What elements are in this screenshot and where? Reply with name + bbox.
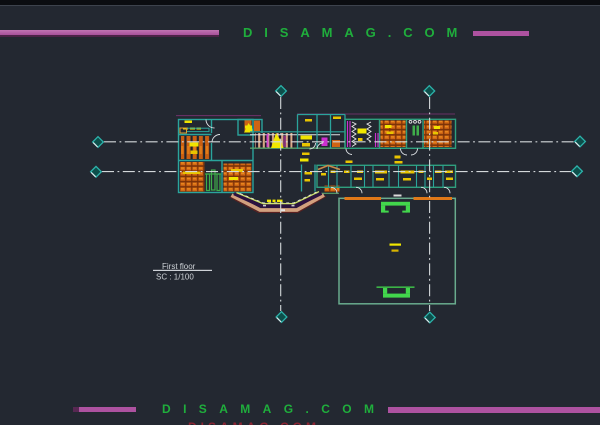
svg-text:SC : 1/100: SC : 1/100 [156,273,194,282]
svg-text:First floor: First floor [162,262,196,271]
